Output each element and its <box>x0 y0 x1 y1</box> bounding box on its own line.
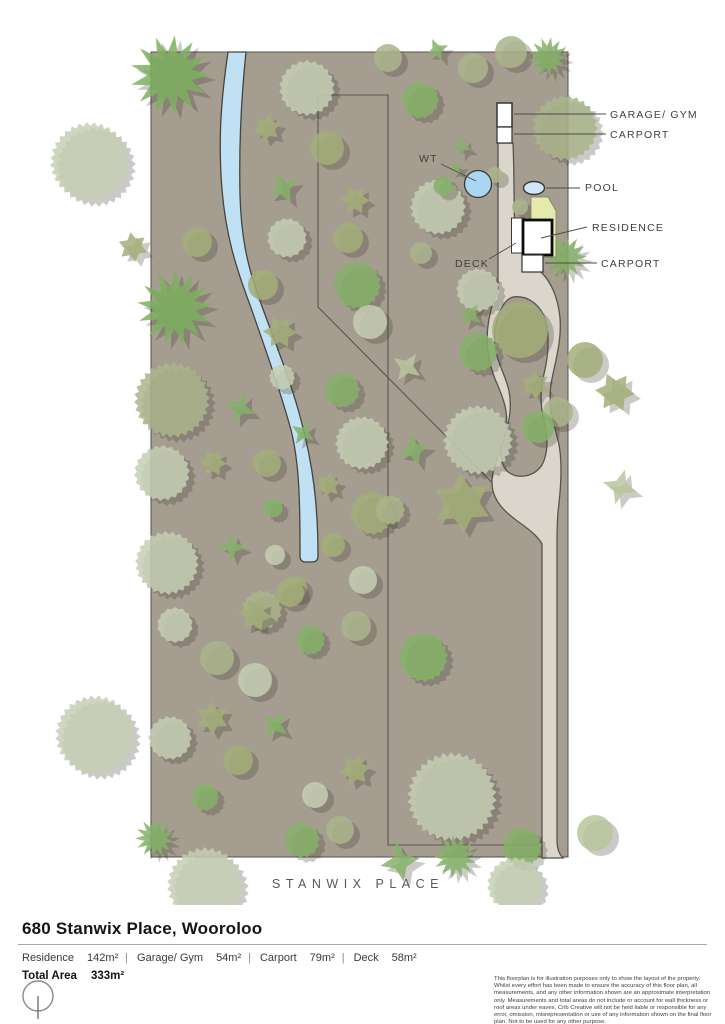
disclaimer-text: This floorplan is for illustration purpo… <box>494 976 712 1024</box>
area-label: Deck <box>354 952 379 964</box>
label-carport-low: CARPORT <box>601 258 661 270</box>
tree <box>302 782 328 808</box>
label-wt: WT <box>419 153 438 165</box>
label-garage-gym: GARAGE/ GYM <box>610 109 698 121</box>
tree <box>200 641 234 675</box>
tree <box>512 199 528 215</box>
building-carport-top <box>497 127 512 143</box>
footer-panel: 680 Stanwix Place, Wooroloo Residence142… <box>0 905 725 1024</box>
tree <box>577 815 613 851</box>
tree <box>182 227 212 257</box>
north-compass-icon <box>20 979 60 1024</box>
tree <box>333 223 363 253</box>
tree <box>567 342 603 378</box>
floorplan-page: GARAGE/ GYMCARPORTPOOLRESIDENCECARPORTDE… <box>0 0 725 1024</box>
tree <box>253 449 281 477</box>
label-road: STANWIX PLACE <box>272 877 444 891</box>
area-separator: | <box>125 952 128 964</box>
tree <box>310 131 344 165</box>
area-value: 142m² <box>87 952 118 964</box>
divider-line <box>18 944 707 945</box>
area-label: Residence <box>22 952 74 964</box>
tree <box>223 745 253 775</box>
tree <box>374 44 402 72</box>
area-value: 79m² <box>310 952 335 964</box>
area-summary: Residence142m²|Garage/ Gym54m²|Carport79… <box>22 952 421 964</box>
area-value: 54m² <box>216 952 241 964</box>
area-value: 58m² <box>392 952 417 964</box>
building-carport-low <box>522 255 543 272</box>
tree <box>410 242 432 264</box>
tree <box>265 545 285 565</box>
label-residence: RESIDENCE <box>592 222 664 234</box>
tree <box>349 566 377 594</box>
tree <box>522 411 554 443</box>
area-label: Carport <box>260 952 297 964</box>
water-tank <box>465 171 492 198</box>
label-carport-top: CARPORT <box>610 129 670 141</box>
pool <box>524 182 545 195</box>
page-title: 680 Stanwix Place, Wooroloo <box>22 919 262 939</box>
label-pool: POOL <box>585 182 619 194</box>
site-plan-map: GARAGE/ GYMCARPORTPOOLRESIDENCECARPORTDE… <box>0 0 725 905</box>
area-label: Garage/ Gym <box>137 952 203 964</box>
tree <box>353 305 387 339</box>
tree <box>326 816 354 844</box>
disclaimer-block: This floorplan is for illustration purpo… <box>494 976 712 1024</box>
tree <box>248 270 278 300</box>
tree <box>321 533 345 557</box>
tree <box>238 663 272 697</box>
area-separator: | <box>342 952 345 964</box>
tree <box>276 579 304 607</box>
building-residence <box>523 220 552 255</box>
building-garage-gym <box>497 103 512 127</box>
tree <box>495 36 527 68</box>
tree <box>341 611 371 641</box>
total-area-value: 333m² <box>91 970 124 982</box>
label-deck: DECK <box>455 258 489 270</box>
area-separator: | <box>248 952 251 964</box>
tree <box>458 53 488 83</box>
